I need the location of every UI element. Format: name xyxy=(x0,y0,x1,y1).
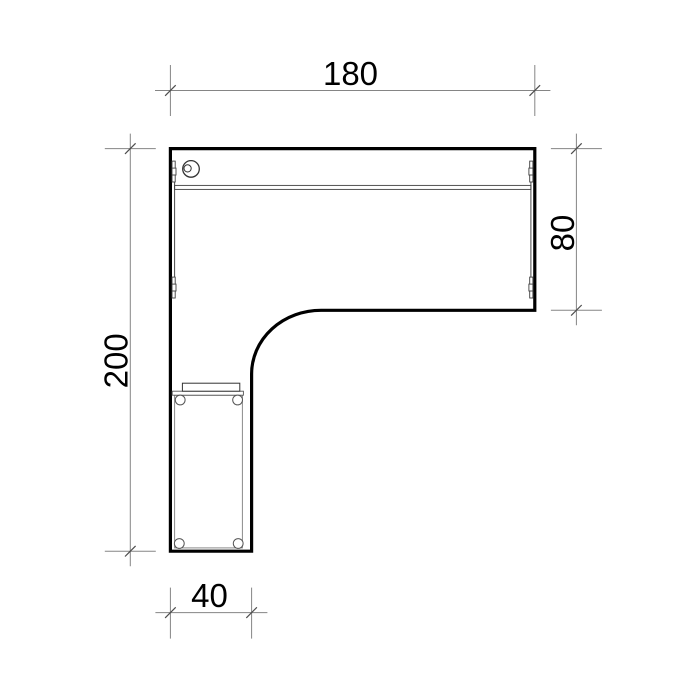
svg-text:180: 180 xyxy=(323,55,378,92)
svg-text:80: 80 xyxy=(544,215,581,252)
svg-text:40: 40 xyxy=(191,577,228,614)
svg-text:200: 200 xyxy=(98,333,135,388)
